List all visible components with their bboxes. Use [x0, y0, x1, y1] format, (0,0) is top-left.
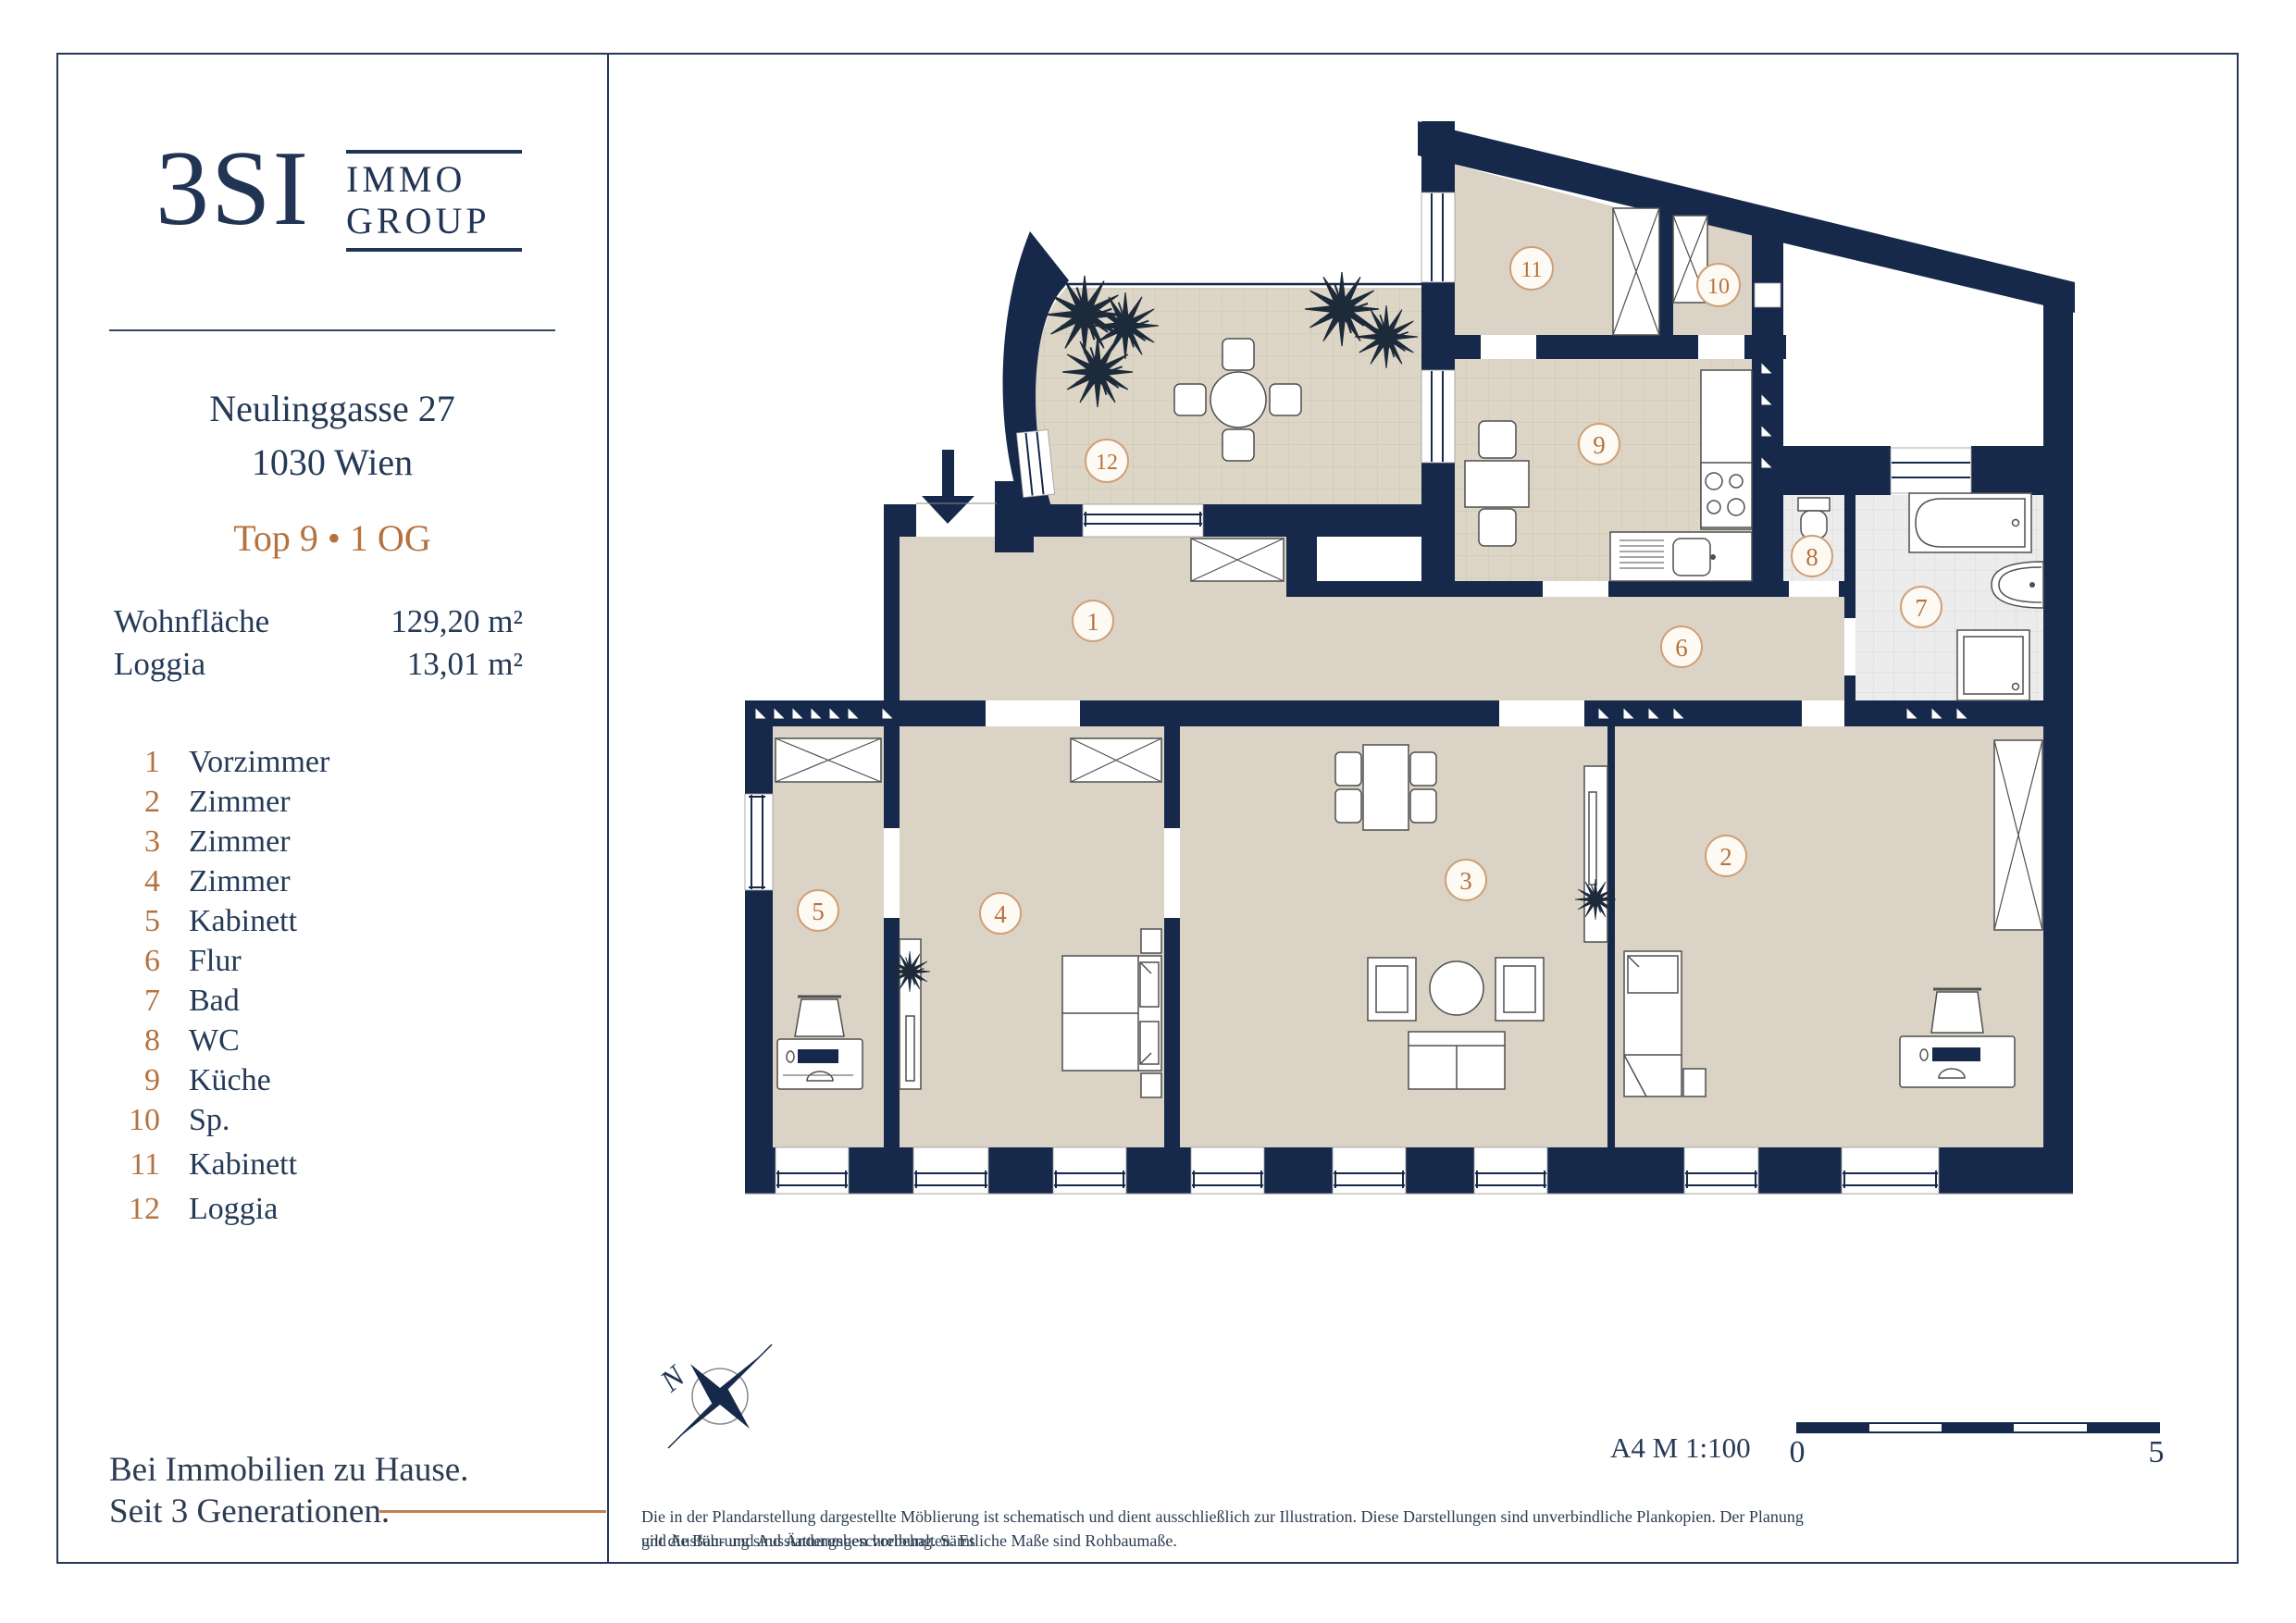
window: [1421, 192, 1455, 282]
dining-chair: [1410, 752, 1436, 786]
svg-text:7: 7: [1915, 594, 1928, 622]
armchair: [1368, 958, 1416, 1021]
svg-text:1: 1: [1086, 608, 1099, 636]
wardrobe: [1613, 208, 1659, 335]
nightstand: [1141, 1073, 1161, 1097]
window: [1333, 1147, 1406, 1194]
window: [1684, 1147, 1758, 1194]
desk: [1900, 1036, 2015, 1087]
svg-text:9: 9: [1593, 431, 1606, 459]
window: [1421, 370, 1455, 463]
loggia-chair: [1270, 384, 1301, 415]
kitchen-sink: [1610, 532, 1752, 581]
svg-text:11: 11: [1520, 258, 1542, 282]
window: [1474, 1147, 1547, 1194]
window: [1191, 1147, 1264, 1194]
room-badge-3: 3: [1446, 860, 1486, 900]
loggia-table: [1210, 372, 1266, 427]
loggia-chair: [1222, 339, 1254, 370]
room-badge-2: 2: [1706, 836, 1746, 876]
window: [1016, 429, 1054, 497]
entrance-arrow: [916, 450, 997, 524]
single-bed: [1624, 951, 1682, 1096]
nightstand: [1683, 1069, 1706, 1096]
window: [1053, 1147, 1126, 1194]
dining-chair: [1335, 752, 1361, 786]
shower: [1957, 630, 2029, 700]
wardrobe: [1191, 539, 1284, 581]
window: [1842, 1147, 1939, 1194]
glazed-door: [1083, 504, 1203, 537]
kitchen-chair: [1479, 421, 1516, 458]
plan-sheet: 3SI IMMO GROUP Neulinggasse 27 1030 Wien…: [0, 0, 2296, 1623]
window: [1891, 448, 1971, 493]
dining-chair: [1410, 789, 1436, 823]
dining-table: [1363, 745, 1409, 830]
svg-text:5: 5: [812, 898, 825, 925]
room-badge-9: 9: [1579, 424, 1620, 465]
coffee-table: [1430, 961, 1483, 1015]
wardrobe: [1994, 740, 2042, 930]
kitchen-table: [1465, 461, 1529, 507]
loggia-chair: [1174, 384, 1206, 415]
double-bed: [1062, 956, 1161, 1071]
wardrobe: [776, 738, 881, 782]
floor-zimmer-4: [900, 726, 1164, 1147]
floor-plan: 1 2 3 4 5 6 7 8 9 10 11 12 N A4 M 1:100: [0, 0, 2296, 1623]
window: [745, 794, 773, 890]
scale-start-label: 0: [1790, 1435, 1806, 1469]
compass-north-label: N: [653, 1358, 692, 1399]
room-badge-6: 6: [1661, 626, 1702, 667]
svg-text:8: 8: [1806, 543, 1818, 571]
armchair: [1496, 958, 1544, 1021]
window: [913, 1147, 988, 1194]
bathtub: [1909, 493, 2031, 552]
room-badge-12: 12: [1086, 440, 1128, 482]
compass: N: [653, 1344, 772, 1448]
svg-text:3: 3: [1459, 867, 1472, 895]
loggia-chair: [1222, 429, 1254, 461]
room-badge-4: 4: [980, 893, 1021, 934]
desk: [777, 1039, 863, 1089]
room-badge-5: 5: [798, 890, 838, 931]
wardrobe: [1071, 738, 1161, 782]
window: [1755, 283, 1781, 307]
svg-text:4: 4: [994, 900, 1007, 928]
scale-bar: A4 M 1:100 0 5: [1610, 1423, 2165, 1469]
svg-text:10: 10: [1707, 275, 1730, 299]
room-badge-10: 10: [1697, 264, 1740, 306]
room-badge-7: 7: [1901, 587, 1942, 627]
stove: [1701, 463, 1752, 527]
kitchen-chair: [1479, 509, 1516, 546]
desk-chair: [1931, 989, 1983, 1033]
dining-chair: [1335, 789, 1361, 823]
desk-chair: [795, 997, 844, 1036]
svg-text:6: 6: [1675, 634, 1688, 662]
room-badge-1: 1: [1073, 601, 1113, 641]
room-badge-8: 8: [1792, 536, 1832, 576]
window: [776, 1147, 849, 1194]
toilet: [1798, 498, 1830, 539]
nightstand: [1141, 929, 1161, 953]
svg-text:12: 12: [1096, 451, 1118, 475]
scale-end-label: 5: [2149, 1435, 2165, 1469]
scale-format-label: A4 M 1:100: [1610, 1431, 1751, 1464]
floor-flur: [1311, 597, 1844, 700]
sofa: [1409, 1032, 1505, 1089]
svg-text:2: 2: [1719, 843, 1732, 871]
room-badge-11: 11: [1510, 247, 1553, 290]
